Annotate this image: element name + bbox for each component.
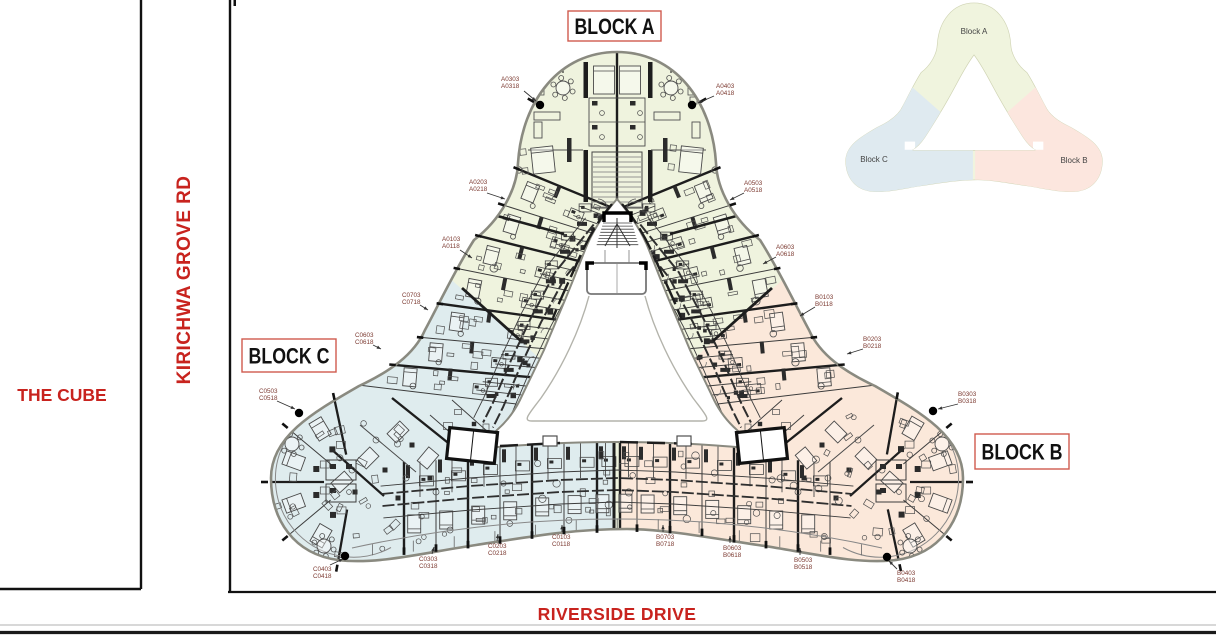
svg-text:THE CUBE: THE CUBE (17, 385, 106, 405)
svg-text:A0203A0218: A0203A0218 (469, 179, 488, 193)
svg-text:B0403B0418: B0403B0418 (897, 570, 916, 584)
svg-text:BLOCK B: BLOCK B (982, 440, 1063, 465)
svg-text:C0103C0118: C0103C0118 (552, 534, 571, 548)
svg-text:B0103B0118: B0103B0118 (815, 294, 834, 308)
svg-text:A0103A0118: A0103A0118 (442, 236, 461, 250)
svg-text:RIVERSIDE DRIVE: RIVERSIDE DRIVE (538, 604, 697, 624)
svg-text:C0203C0218: C0203C0218 (488, 543, 507, 557)
svg-text:Block B: Block B (1060, 156, 1087, 165)
svg-text:A0303A0318: A0303A0318 (501, 76, 520, 90)
svg-text:C0303C0318: C0303C0318 (419, 556, 438, 570)
svg-text:B0603B0618: B0603B0618 (723, 545, 742, 559)
svg-text:A0403A0418: A0403A0418 (716, 83, 735, 97)
svg-text:C0503C0518: C0503C0518 (259, 388, 278, 402)
svg-text:C0703C0718: C0703C0718 (402, 292, 421, 306)
svg-text:BLOCK C: BLOCK C (249, 344, 330, 369)
svg-text:C0403C0418: C0403C0418 (313, 566, 332, 580)
svg-text:A0503A0518: A0503A0518 (744, 180, 763, 194)
svg-text:B0703B0718: B0703B0718 (656, 534, 675, 548)
svg-text:KIRICHWA GROVE RD: KIRICHWA GROVE RD (174, 176, 195, 385)
svg-text:BLOCK A: BLOCK A (575, 14, 655, 39)
svg-text:C0603C0618: C0603C0618 (355, 332, 374, 346)
svg-text:A0603A0618: A0603A0618 (776, 244, 795, 258)
svg-text:B0303B0318: B0303B0318 (958, 391, 977, 405)
svg-text:B0203B0218: B0203B0218 (863, 336, 882, 350)
svg-text:Block A: Block A (961, 27, 988, 36)
svg-text:Block C: Block C (860, 155, 888, 164)
svg-text:B0503B0518: B0503B0518 (794, 557, 813, 571)
